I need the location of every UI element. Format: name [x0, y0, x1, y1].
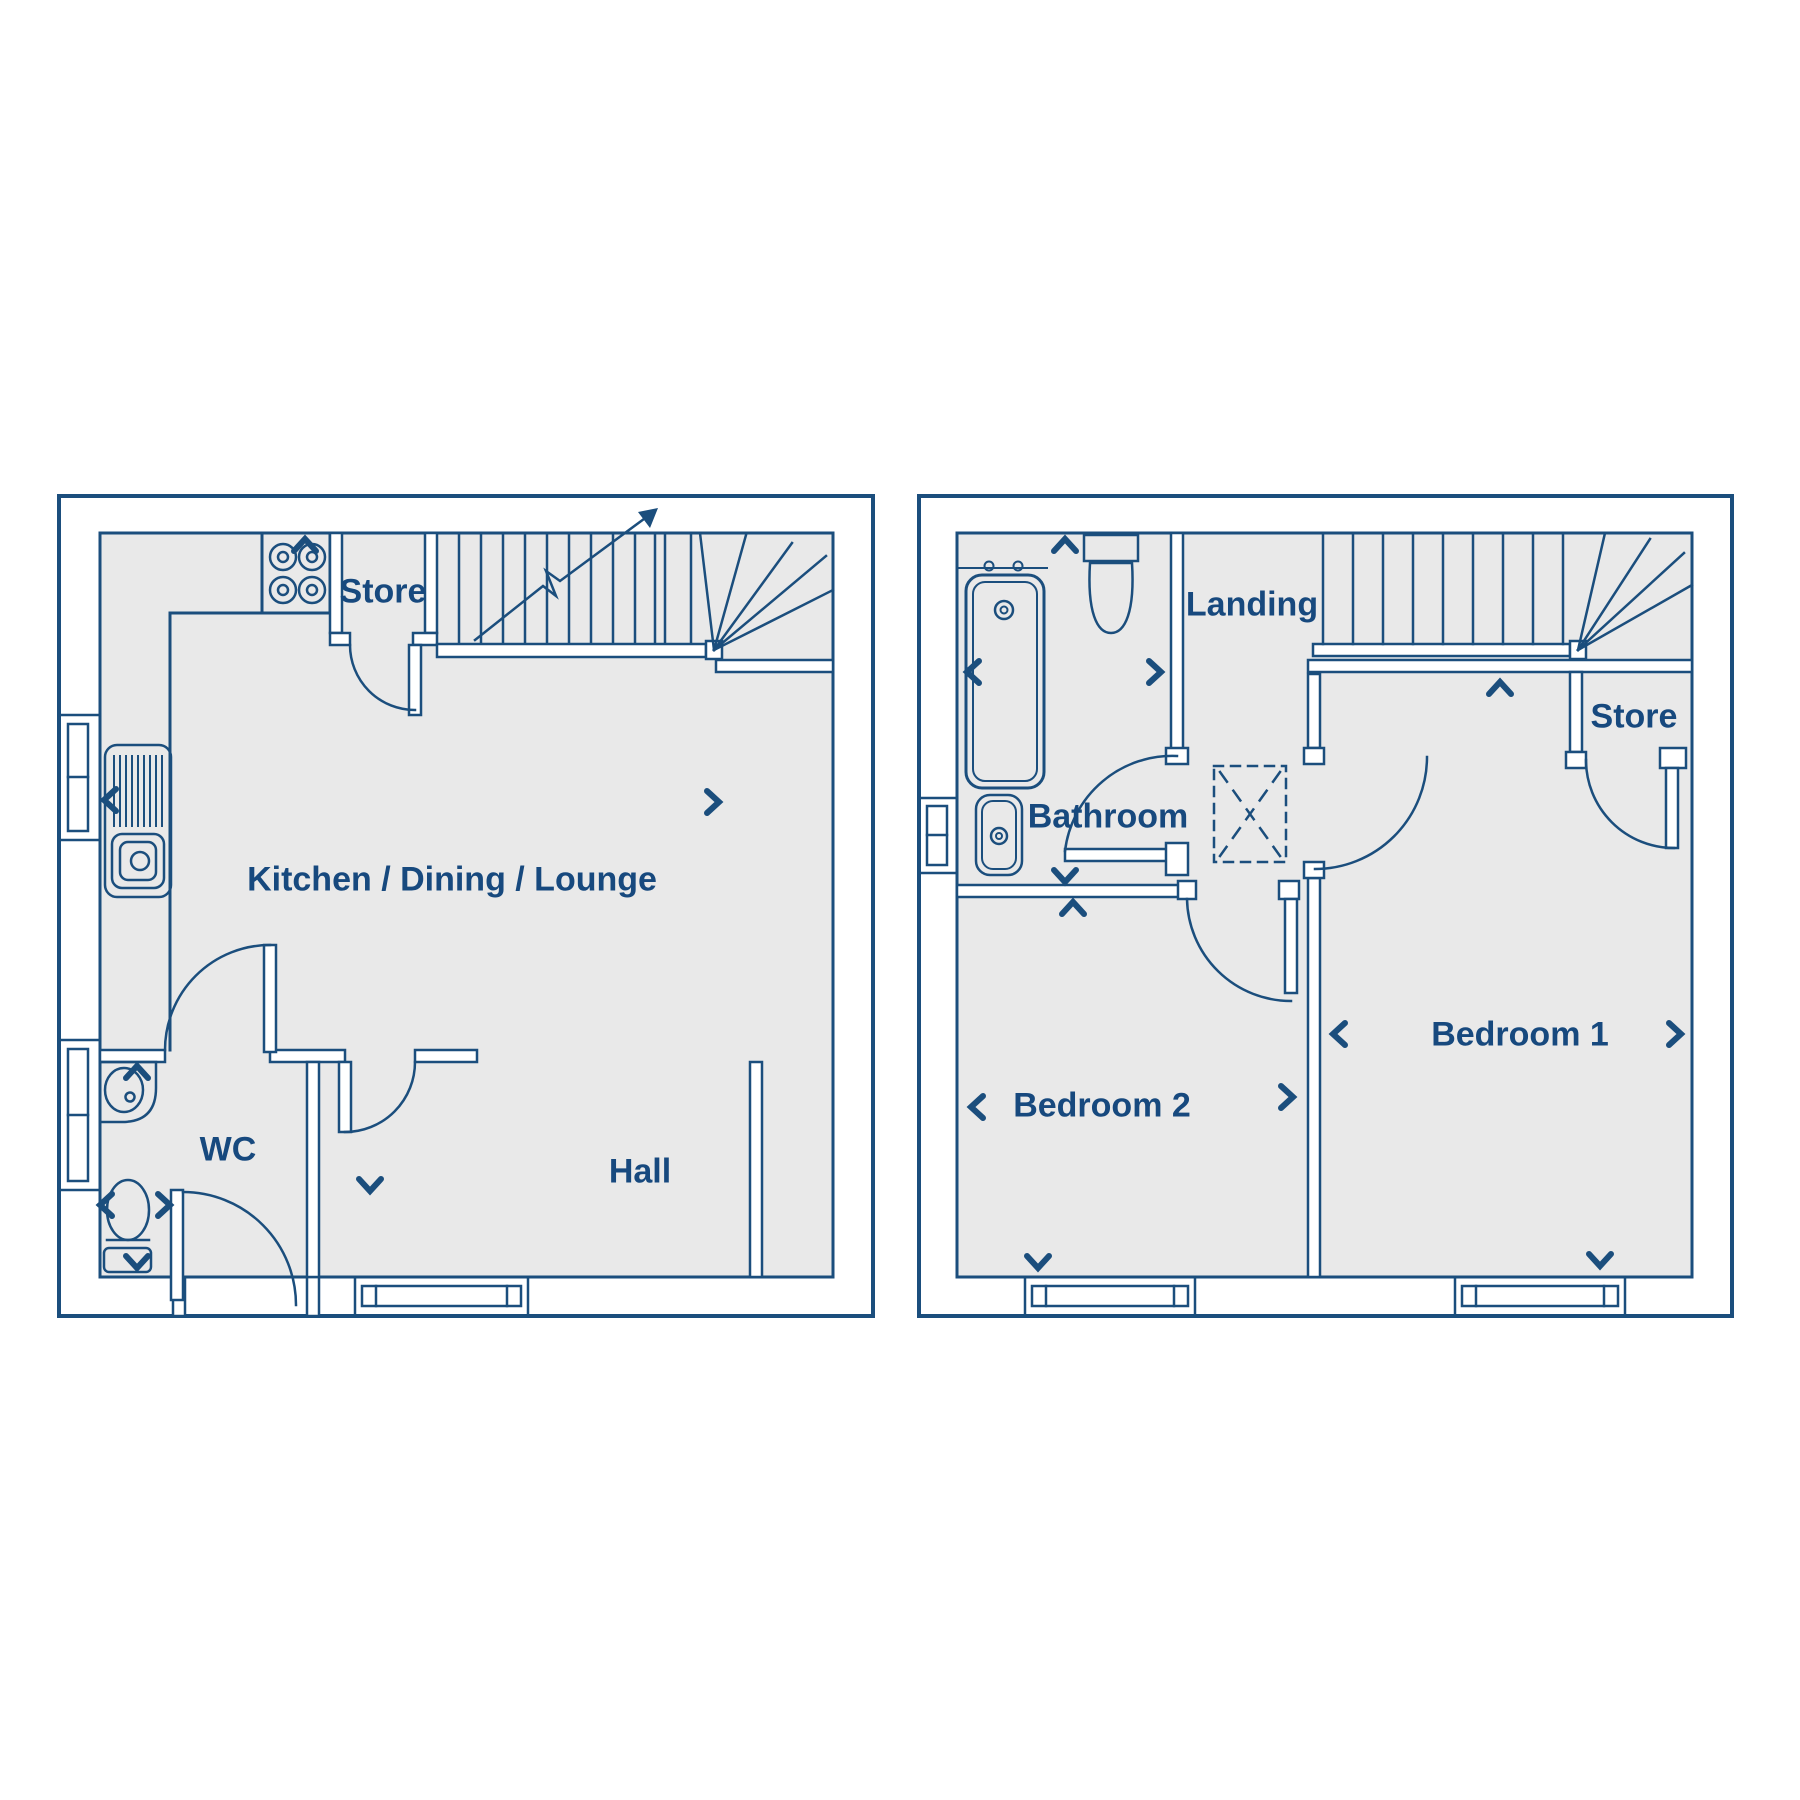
ff-bathroom-door-leaf [1065, 849, 1171, 861]
room-label-bedroom-2: Bedroom 2 [1013, 1087, 1191, 1126]
gf-hall-door-leaf [339, 1062, 351, 1132]
room-label-bathroom: Bathroom [1028, 798, 1189, 837]
first-floor-plan [919, 496, 1732, 1316]
ff-store-door-leaf [1666, 768, 1678, 848]
room-label-hall: Hall [609, 1153, 671, 1192]
gf-stairs-handrail [437, 644, 706, 657]
ff-window-bottom-bed2 [1025, 1277, 1195, 1316]
room-label-store-ground: Store [340, 573, 427, 612]
room-label-store-first: Store [1591, 698, 1678, 737]
gf-window-left-2 [59, 1040, 100, 1190]
floorplan-drawing [0, 0, 1800, 1800]
ground-floor-plan [59, 496, 873, 1316]
ff-stairs-handrail [1313, 644, 1570, 656]
gf-window-bottom [355, 1277, 528, 1316]
room-label-kitchen-dining-lounge: Kitchen / Dining / Lounge [247, 861, 657, 900]
room-label-wc: WC [200, 1131, 257, 1170]
gf-wc-door-leaf [264, 945, 276, 1052]
room-label-landing: Landing [1186, 586, 1318, 625]
gf-store-door-leaf [409, 645, 421, 715]
room-label-bedroom-1: Bedroom 1 [1431, 1016, 1609, 1055]
gf-window-left-1 [59, 715, 100, 840]
ff-window-bottom-bed1 [1455, 1277, 1625, 1316]
floorplan-canvas: Store Kitchen / Dining / Lounge WC Hall … [0, 0, 1800, 1800]
ff-bedroom2-door-leaf [1285, 899, 1297, 993]
ff-window-left [919, 798, 957, 873]
